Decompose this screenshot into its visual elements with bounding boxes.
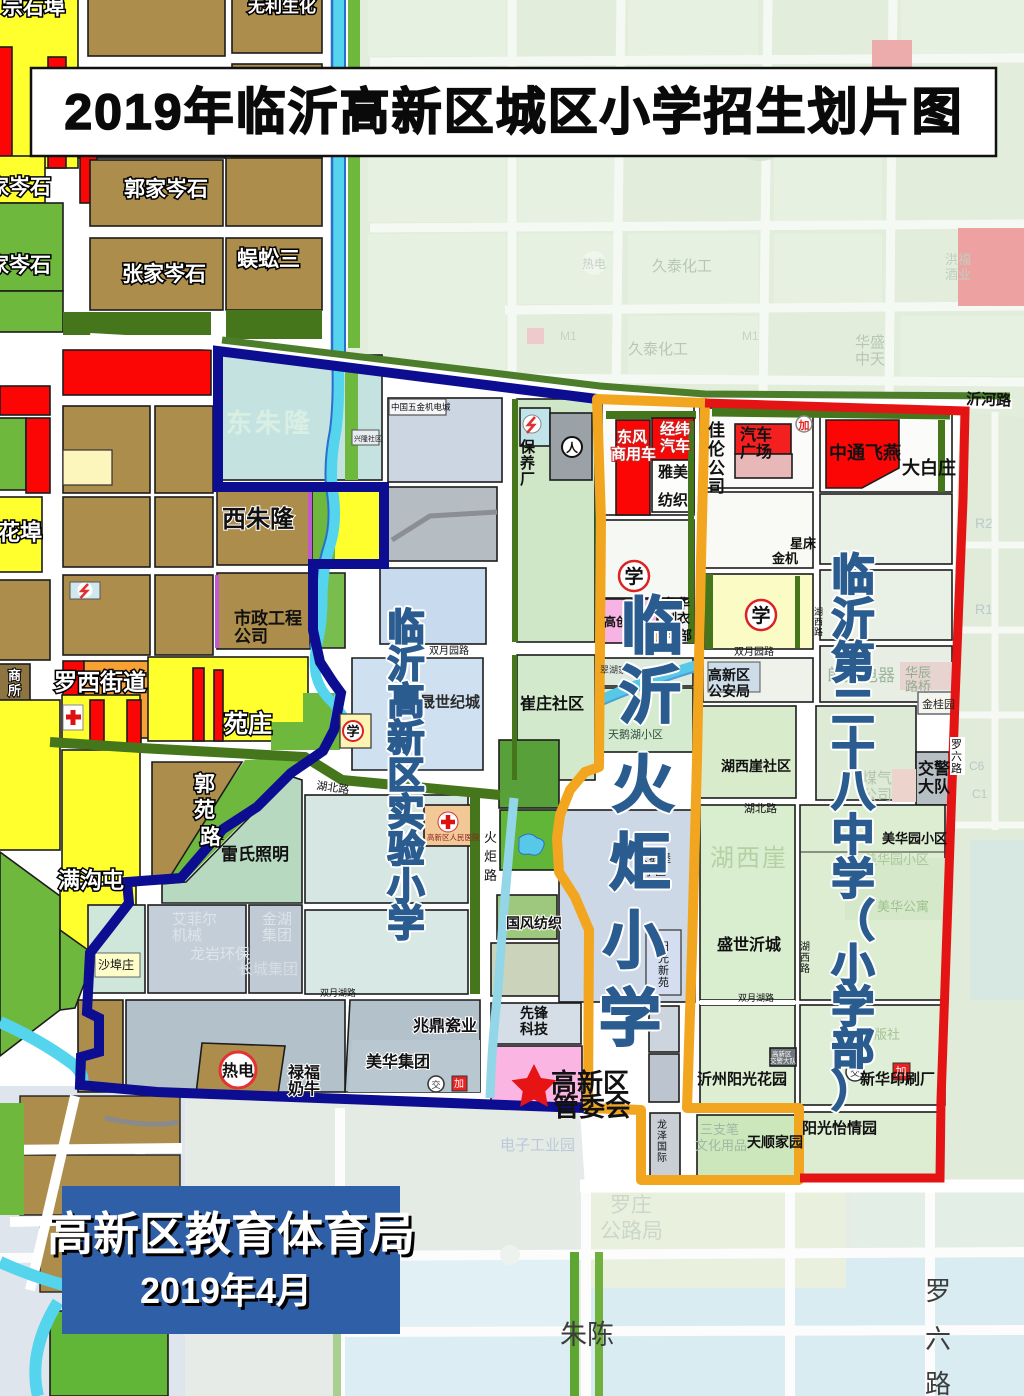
svg-text:汽车: 汽车: [740, 425, 772, 444]
svg-text:集团: 集团: [262, 927, 292, 944]
svg-text:中: 中: [832, 812, 875, 860]
svg-text:天顺家园: 天顺家园: [747, 1134, 803, 1150]
svg-text:满沟屯: 满沟屯: [58, 868, 124, 893]
svg-text:罗西街道: 罗西街道: [54, 669, 146, 695]
svg-text:R1: R1: [975, 601, 993, 617]
svg-text:沂: 沂: [619, 662, 681, 731]
svg-text:高新区: 高新区: [772, 1049, 792, 1058]
svg-text:沂州阳光花园: 沂州阳光花园: [697, 1070, 787, 1088]
svg-text:学: 学: [832, 984, 875, 1032]
svg-text:三支笔: 三支笔: [700, 1122, 739, 1137]
svg-text:临: 临: [388, 607, 425, 648]
svg-text:郭家岑石: 郭家岑石: [124, 177, 208, 201]
svg-text:美华园小区: 美华园小区: [882, 831, 947, 846]
svg-text:伦: 伦: [708, 439, 726, 459]
svg-text:商: 商: [8, 668, 21, 683]
svg-text:奶牛: 奶牛: [288, 1079, 320, 1098]
svg-text:学: 学: [599, 985, 661, 1054]
svg-text:加: 加: [454, 1078, 464, 1090]
svg-text:厂: 厂: [520, 471, 535, 488]
svg-text:路: 路: [925, 1369, 951, 1396]
svg-text:验: 验: [388, 829, 425, 870]
svg-text:家岑石: 家岑石: [0, 253, 51, 277]
svg-text:双月湖路: 双月湖路: [320, 987, 356, 998]
svg-text:兆鼎瓷业: 兆鼎瓷业: [413, 1016, 477, 1035]
svg-text:东朱隆: 东朱隆: [226, 408, 313, 438]
svg-text:星床: 星床: [790, 536, 817, 551]
svg-text:国: 国: [657, 1141, 667, 1153]
svg-text:交: 交: [431, 1079, 440, 1090]
svg-text:科技: 科技: [520, 1021, 549, 1037]
svg-text:R2: R2: [975, 515, 993, 531]
svg-text:双月园路: 双月园路: [429, 644, 469, 657]
svg-text:美华公寓: 美华公寓: [877, 899, 929, 914]
svg-text:长城集团: 长城集团: [238, 961, 298, 978]
svg-text:公安局: 公安局: [708, 683, 750, 699]
svg-text:湖西崖: 湖西崖: [710, 845, 788, 872]
svg-text:区: 区: [388, 755, 425, 796]
svg-text:雅美: 雅美: [657, 463, 689, 481]
svg-text:罗: 罗: [925, 1276, 951, 1306]
svg-text:沙埠庄: 沙埠庄: [98, 957, 134, 972]
svg-text:汽车: 汽车: [660, 437, 690, 455]
svg-text:宗石埠: 宗石埠: [2, 0, 65, 19]
svg-text:华辰: 华辰: [905, 665, 931, 680]
svg-text:中国五金机电城: 中国五金机电城: [391, 402, 451, 412]
svg-text:小: 小: [603, 907, 665, 976]
svg-text:酒业: 酒业: [945, 267, 971, 282]
svg-text:西朱隆: 西朱隆: [222, 505, 295, 533]
svg-text:湖北路: 湖北路: [744, 802, 777, 815]
svg-text:禄福: 禄福: [288, 1063, 320, 1082]
svg-text:湖: 湖: [800, 941, 810, 953]
svg-text:十: 十: [832, 726, 875, 774]
svg-text:热电: 热电: [582, 257, 606, 271]
svg-text:金湖: 金湖: [262, 911, 292, 928]
svg-text:二: 二: [832, 684, 875, 732]
svg-text:西: 西: [814, 617, 823, 627]
svg-text:广场: 广场: [740, 442, 772, 461]
svg-text:大队: 大队: [918, 777, 951, 796]
svg-text:泽: 泽: [657, 1130, 667, 1142]
svg-text:六: 六: [925, 1324, 951, 1354]
svg-text:商用车: 商用车: [611, 445, 656, 463]
svg-text:养: 养: [519, 454, 536, 472]
svg-text:高: 高: [388, 681, 425, 722]
svg-text:电子工业园: 电子工业园: [500, 1137, 575, 1154]
svg-text:路: 路: [814, 626, 823, 637]
svg-text:火: 火: [612, 751, 674, 820]
svg-text:高新区教育体育局: 高新区教育体育局: [47, 1208, 415, 1260]
svg-text:临: 临: [832, 552, 875, 600]
svg-text:路: 路: [951, 762, 962, 775]
svg-text:2019年临沂高新区城区小学招生划片图: 2019年临沂高新区城区小学招生划片图: [64, 84, 963, 140]
svg-text:C1: C1: [972, 787, 988, 801]
svg-text:美华集团: 美华集团: [366, 1052, 430, 1071]
svg-text:湖西崖社区: 湖西崖社区: [721, 758, 791, 774]
svg-text:先锋: 先锋: [520, 1005, 549, 1021]
svg-text:雷氏照明: 雷氏照明: [221, 845, 289, 864]
svg-text:无利生化: 无利生化: [247, 0, 316, 16]
svg-text:M1: M1: [742, 329, 759, 343]
svg-text:罗庄: 罗庄: [610, 1194, 652, 1217]
svg-text:交警: 交警: [918, 759, 950, 778]
svg-text:金机: 金机: [771, 551, 798, 566]
svg-text:部: 部: [832, 1026, 875, 1074]
svg-text:交警大队: 交警大队: [770, 1056, 797, 1065]
svg-text:路桥: 路桥: [905, 679, 931, 694]
svg-text:公路局: 公路局: [600, 1220, 663, 1243]
svg-text:学: 学: [832, 856, 875, 904]
svg-text:艾菲尔: 艾菲尔: [172, 911, 217, 928]
svg-text:晟世纪城: 晟世纪城: [420, 693, 480, 711]
svg-text:新: 新: [388, 718, 425, 759]
svg-text:第: 第: [832, 640, 875, 688]
svg-text:炬: 炬: [484, 849, 497, 864]
svg-text:湖: 湖: [814, 607, 823, 617]
svg-text:高新区: 高新区: [708, 667, 750, 683]
svg-text:金桂园: 金桂园: [922, 697, 955, 711]
svg-text:沂: 沂: [388, 644, 425, 685]
svg-text:双月湖路: 双月湖路: [738, 992, 774, 1003]
svg-text:罗: 罗: [951, 738, 962, 751]
svg-text:八: 八: [832, 768, 876, 816]
svg-text:公: 公: [708, 459, 725, 478]
svg-text:火: 火: [484, 830, 497, 845]
svg-text:佳: 佳: [708, 420, 725, 440]
svg-text:公司: 公司: [234, 627, 268, 646]
svg-text:学: 学: [751, 604, 770, 627]
svg-text:际: 际: [657, 1152, 667, 1164]
svg-text:大白庄: 大白庄: [902, 457, 956, 478]
svg-text:久泰化工: 久泰化工: [628, 341, 688, 358]
svg-text:苑庄: 苑庄: [224, 710, 272, 738]
svg-text:久泰化工: 久泰化工: [652, 258, 712, 275]
svg-text:朱陈: 朱陈: [560, 1320, 614, 1350]
svg-text:学: 学: [388, 902, 425, 944]
svg-text:阳光怡情园: 阳光怡情园: [802, 1119, 877, 1137]
svg-text:国风纺织: 国风纺织: [506, 915, 562, 931]
svg-text:C6: C6: [969, 759, 985, 773]
svg-text:龙: 龙: [657, 1118, 667, 1131]
svg-text:2019年4月: 2019年4月: [140, 1270, 312, 1311]
svg-text:所: 所: [8, 683, 21, 698]
svg-text:洪福: 洪福: [945, 252, 971, 267]
svg-text:沂: 沂: [832, 596, 875, 644]
svg-text:崔庄社区: 崔庄社区: [520, 694, 584, 713]
svg-text:华盛: 华盛: [855, 334, 885, 351]
svg-text:中天: 中天: [855, 351, 885, 368]
svg-text:市政工程: 市政工程: [234, 608, 302, 628]
svg-text:路: 路: [200, 825, 222, 849]
svg-text:实: 实: [388, 792, 425, 833]
svg-text:学: 学: [624, 565, 643, 588]
svg-text:高新区人民医院: 高新区人民医院: [427, 832, 480, 842]
svg-text:郭: 郭: [194, 772, 215, 796]
svg-text:管委会: 管委会: [553, 1092, 631, 1122]
svg-text:小: 小: [832, 942, 875, 990]
svg-text:东风: 东风: [617, 428, 647, 446]
svg-text:热电: 热电: [222, 1061, 254, 1080]
svg-text:路: 路: [800, 962, 810, 975]
svg-text:经纬: 经纬: [660, 420, 690, 438]
svg-text:加: 加: [798, 418, 810, 432]
svg-text:兴隆社区: 兴隆社区: [354, 434, 382, 443]
svg-text:临: 临: [621, 593, 683, 662]
svg-text:司: 司: [708, 477, 725, 496]
svg-text:路: 路: [484, 868, 497, 883]
svg-text:西: 西: [800, 953, 810, 964]
svg-text:蜈蚣三: 蜈蚣三: [237, 248, 300, 271]
svg-text:花埠: 花埠: [0, 520, 42, 545]
svg-text:人: 人: [566, 440, 579, 455]
svg-text:学: 学: [346, 724, 359, 739]
svg-text:保: 保: [519, 438, 536, 456]
svg-text:中通飞燕: 中通飞燕: [829, 442, 901, 463]
svg-text:家岑石: 家岑石: [0, 175, 51, 199]
svg-text:炬: 炬: [609, 829, 671, 898]
svg-text:机械: 机械: [172, 927, 202, 944]
svg-text:沂河路: 沂河路: [966, 390, 1013, 410]
svg-text:纺织: 纺织: [658, 491, 688, 509]
svg-text:）: ）: [832, 1068, 875, 1116]
svg-text:文化用品: 文化用品: [695, 1138, 747, 1153]
svg-text:苑: 苑: [194, 799, 215, 822]
svg-text:小: 小: [388, 866, 425, 907]
svg-text:六: 六: [951, 750, 962, 763]
svg-text:双月园路: 双月园路: [734, 645, 774, 658]
svg-text:张家岑石: 张家岑石: [122, 262, 206, 286]
svg-text:盛世沂城: 盛世沂城: [717, 935, 781, 954]
svg-text:（: （: [832, 898, 875, 946]
svg-text:M1: M1: [560, 329, 577, 343]
